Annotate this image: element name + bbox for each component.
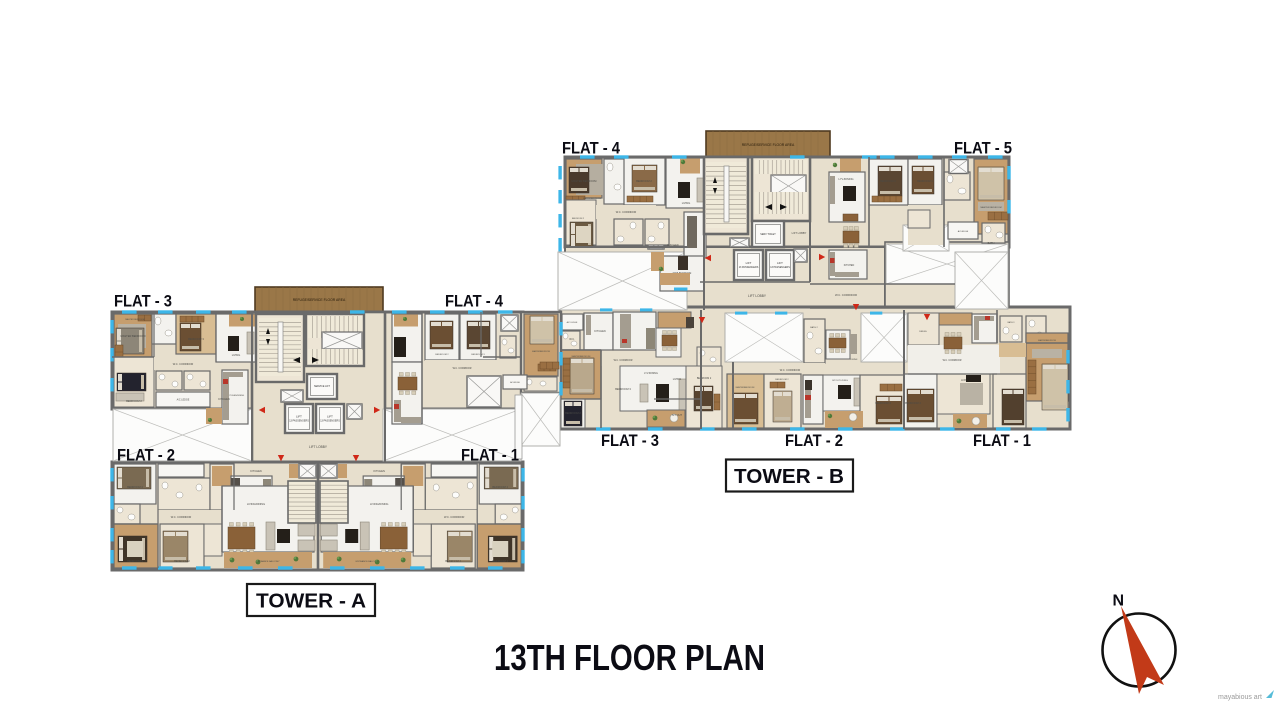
svg-text:W.C. CORRIDOR: W.C. CORRIDOR — [173, 362, 194, 366]
svg-text:W.C. CORRIDOR: W.C. CORRIDOR — [943, 359, 962, 362]
svg-text:BEDROOM 2: BEDROOM 2 — [636, 179, 652, 183]
svg-text:KITCHEN: KITCHEN — [667, 243, 679, 247]
svg-text:BEDROOM 2: BEDROOM 2 — [697, 377, 712, 380]
svg-text:BEDROOM 2: BEDROOM 2 — [572, 218, 585, 220]
svg-text:REFUGE/SERVICE FLOOR AREA: REFUGE/SERVICE FLOOR AREA — [293, 298, 346, 302]
svg-text:BATH: BATH — [988, 241, 995, 245]
svg-text:TOWER - A: TOWER - A — [256, 591, 366, 613]
svg-text:BEDROOM 3: BEDROOM 3 — [875, 401, 891, 405]
svg-text:W.C. CORRIDOR: W.C. CORRIDOR — [171, 515, 192, 519]
svg-text:13TH FLOOR PLAN: 13TH FLOOR PLAN — [494, 637, 765, 678]
svg-text:A/C LEDGE: A/C LEDGE — [177, 399, 190, 402]
svg-text:BATH 3: BATH 3 — [1008, 321, 1016, 324]
svg-text:LIVING/DINING: LIVING/DINING — [247, 502, 265, 506]
svg-text:A/C LEDGE: A/C LEDGE — [567, 321, 578, 324]
svg-text:BEDROOM 2: BEDROOM 2 — [126, 399, 142, 403]
svg-text:REFUGE/SERVICE FLOOR AREA: REFUGE/SERVICE FLOOR AREA — [742, 143, 795, 147]
svg-text:LIVING: LIVING — [673, 377, 682, 381]
svg-text:LIVING: LIVING — [682, 201, 691, 205]
svg-text:FLAT - 4: FLAT - 4 — [445, 293, 504, 311]
svg-text:BATH 2: BATH 2 — [810, 326, 818, 329]
svg-text:BEDROOM 2: BEDROOM 2 — [445, 559, 461, 563]
svg-text:W.C. CORRIDOR: W.C. CORRIDOR — [780, 368, 801, 372]
svg-text:FLAT - 4: FLAT - 4 — [562, 140, 621, 158]
svg-text:SERVICE LIFT: SERVICE LIFT — [314, 385, 331, 388]
svg-text:LYV./DINING: LYV./DINING — [839, 177, 854, 181]
svg-text:KITCHEN: KITCHEN — [374, 469, 386, 473]
svg-text:MASTERBEDROOM: MASTERBEDROOM — [736, 386, 755, 389]
svg-text:ACLEDGE: ACLEDGE — [958, 230, 969, 233]
svg-text:FLAT - 1: FLAT - 1 — [461, 447, 519, 465]
svg-text:13 PASSENGERS: 13 PASSENGERS — [289, 420, 309, 423]
svg-text:BEDROOM 2: BEDROOM 2 — [775, 379, 789, 381]
svg-text:FLAT - 3: FLAT - 3 — [601, 432, 659, 450]
svg-text:LIFT LOBBY: LIFT LOBBY — [309, 445, 328, 449]
svg-text:TOWER - B: TOWER - B — [734, 466, 844, 488]
svg-text:FLAT - 5: FLAT - 5 — [954, 140, 1012, 158]
svg-text:MASTER BEDROOM: MASTER BEDROOM — [572, 179, 597, 183]
svg-text:W.C. CORRIDOR: W.C. CORRIDOR — [835, 293, 857, 297]
svg-text:BEDROOM 3: BEDROOM 3 — [615, 387, 631, 391]
svg-text:KITCHEN: KITCHEN — [594, 329, 606, 333]
svg-text:LYV./DINING: LYV./DINING — [644, 372, 658, 375]
svg-text:FLAT - 1: FLAT - 1 — [973, 432, 1031, 450]
svg-text:BEDROOM 1: BEDROOM 1 — [127, 559, 143, 563]
svg-text:BEDROOM 4: BEDROOM 4 — [905, 401, 921, 405]
svg-text:BEDROOM 3: BEDROOM 3 — [471, 354, 485, 356]
svg-text:W.C. CORRIDOR: W.C. CORRIDOR — [453, 367, 472, 370]
svg-text:W.C.: W.C. — [569, 337, 575, 341]
svg-text:SIT OUT: SIT OUT — [672, 413, 683, 417]
svg-text:LIVING/DINING: LIVING/DINING — [370, 502, 388, 506]
svg-text:FLAT - 3: FLAT - 3 — [114, 293, 172, 311]
svg-text:BEDROOM 3: BEDROOM 3 — [917, 179, 933, 183]
svg-text:FLAT - 2: FLAT - 2 — [117, 447, 175, 465]
svg-text:BEDROOM 2: BEDROOM 2 — [880, 179, 896, 183]
svg-text:W.C. CORRIDOR: W.C. CORRIDOR — [614, 359, 633, 362]
svg-text:BEDROOM 4: BEDROOM 4 — [127, 485, 143, 489]
svg-text:ENTRANCE BALCONY: ENTRANCE BALCONY — [356, 560, 380, 563]
svg-text:BEDROOM 3: BEDROOM 3 — [188, 337, 204, 341]
svg-text:SERV TOILET: SERV TOILET — [760, 233, 776, 236]
svg-text:BEDROOM 1: BEDROOM 1 — [492, 559, 508, 563]
svg-text:DRESS: DRESS — [919, 331, 927, 333]
svg-text:MASTERBEDROOM: MASTERBEDROOM — [572, 355, 591, 358]
svg-text:FLAT - 2: FLAT - 2 — [785, 432, 843, 450]
svg-text:MASTERBEDROOM: MASTERBEDROOM — [1038, 339, 1056, 342]
svg-text:W.C. CORRIDOR: W.C. CORRIDOR — [444, 515, 465, 519]
svg-text:LIFT: LIFT — [777, 261, 783, 265]
svg-text:MASTER BEDROOM: MASTER BEDROOM — [121, 334, 146, 338]
svg-text:LIFT: LIFT — [327, 415, 333, 419]
svg-text:LIFT LOBBY: LIFT LOBBY — [792, 231, 807, 235]
svg-text:KITCHEN/DINING: KITCHEN/DINING — [228, 395, 245, 397]
svg-text:13 PASSENGERS: 13 PASSENGERS — [739, 266, 759, 269]
svg-text:LIVING: LIVING — [232, 353, 241, 357]
svg-text:MASTERBEDROOM: MASTERBEDROOM — [532, 350, 550, 353]
svg-text:LIFT: LIFT — [746, 261, 752, 265]
svg-text:N: N — [1113, 593, 1125, 610]
svg-text:BEDROOM 4: BEDROOM 4 — [492, 485, 508, 489]
svg-text:MASTER BEDROOM: MASTER BEDROOM — [125, 318, 145, 321]
svg-text:KITCHEN: KITCHEN — [218, 397, 230, 401]
svg-text:KITCHEN: KITCHEN — [250, 469, 262, 473]
svg-text:13 PASSENGERS: 13 PASSENGERS — [770, 266, 790, 269]
svg-text:SITOUT/LIVING: SITOUT/LIVING — [832, 380, 848, 382]
svg-text:MASTER BEDROOM: MASTER BEDROOM — [980, 206, 1001, 209]
svg-text:BEDROOM 2: BEDROOM 2 — [565, 411, 581, 415]
svg-text:BEDROOM 2: BEDROOM 2 — [435, 354, 449, 356]
svg-text:ACLEDGE: ACLEDGE — [510, 381, 520, 384]
svg-text:W.C. CORRIDOR: W.C. CORRIDOR — [616, 210, 637, 214]
svg-text:mayabious art: mayabious art — [1218, 694, 1262, 701]
svg-text:ENTRANCE BALCONY: ENTRANCE BALCONY — [256, 560, 280, 563]
svg-text:13 PASSENGERS: 13 PASSENGERS — [320, 420, 340, 423]
svg-text:BEDROOM 2: BEDROOM 2 — [174, 559, 190, 563]
svg-text:DRINK: DRINK — [851, 359, 858, 361]
svg-text:LIFT: LIFT — [296, 415, 302, 419]
svg-text:KITCHEN: KITCHEN — [844, 264, 855, 267]
svg-text:LIFT LOBBY: LIFT LOBBY — [748, 294, 767, 298]
